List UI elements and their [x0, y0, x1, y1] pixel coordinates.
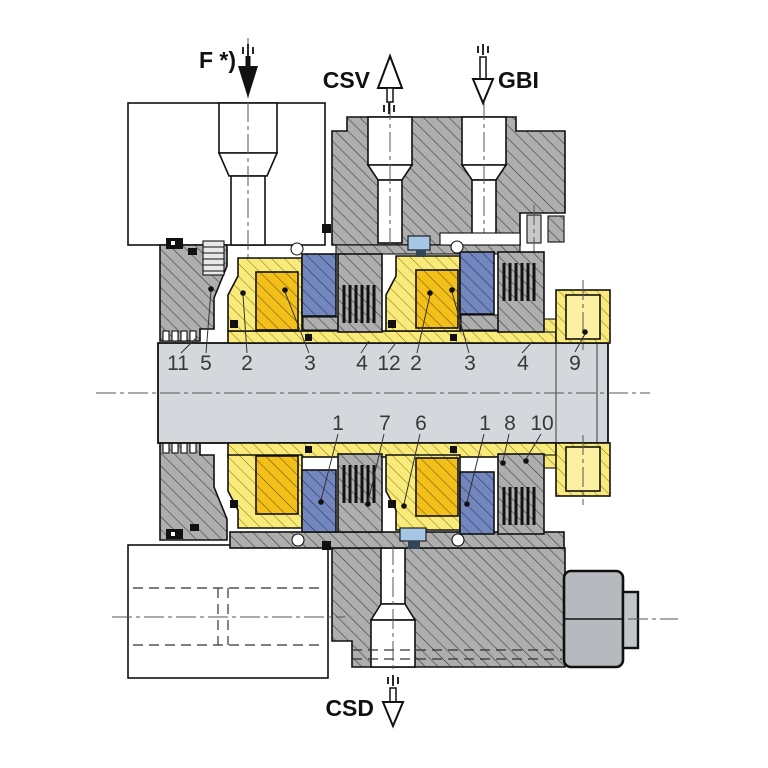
part-label: 2 [410, 352, 422, 375]
gland-flange-lug [548, 216, 564, 242]
force-label: F *) [199, 47, 236, 73]
part-label: 1 [479, 412, 491, 435]
flow-ticks [478, 44, 488, 55]
part-label: 3 [464, 352, 476, 375]
part-label: 7 [379, 412, 391, 435]
force-arrow-down [238, 66, 258, 98]
part-label: 1 [332, 412, 344, 435]
part-label: 5 [200, 352, 212, 375]
part-label: 4 [356, 352, 368, 375]
csv-label: CSV [323, 67, 371, 93]
part-label: 8 [504, 412, 516, 435]
seal-face-3 [256, 456, 298, 514]
stuffing-box-flange-upper [160, 238, 227, 341]
hex-bolt [564, 571, 678, 667]
threaded-plug [203, 241, 224, 275]
part-label: 10 [530, 412, 553, 435]
part-label: 6 [415, 412, 427, 435]
part-label: 3 [304, 352, 316, 375]
gbi-annotation: GBI [473, 44, 539, 103]
csd-arrow-down [383, 702, 403, 726]
pumping-ring-upper [408, 236, 430, 250]
seal-cross-section-diagram: 11 5 2 3 4 12 2 3 4 9 1 7 6 1 8 10 F *) … [0, 0, 768, 768]
part-label: 9 [569, 352, 581, 375]
mating-ring-1 [302, 254, 336, 316]
diagram-canvas: 11 5 2 3 4 12 2 3 4 9 1 7 6 1 8 10 F *) … [0, 0, 768, 768]
csd-label: CSD [325, 695, 374, 721]
seal-face-4 [416, 458, 458, 516]
gbi-arrow-down [473, 79, 493, 103]
part-label: 4 [517, 352, 529, 375]
gbi-label: GBI [498, 67, 539, 93]
upper-gland-housing [332, 100, 565, 254]
flow-ticks [388, 675, 398, 686]
lower-gland-housing [332, 548, 565, 667]
part-label: 2 [241, 352, 253, 375]
part-label: 11 [167, 352, 189, 375]
flow-ticks [384, 103, 394, 114]
part-label: 12 [377, 352, 400, 375]
flow-ticks [243, 44, 253, 56]
mating-ring-2 [460, 252, 494, 314]
pumping-ring-lower [400, 528, 426, 541]
seal-face-1 [256, 272, 298, 330]
csd-annotation: CSD [325, 675, 403, 726]
seal-face-2 [416, 270, 458, 328]
stuffing-box-flange-lower [160, 443, 227, 540]
csv-arrow-up [378, 56, 402, 88]
force-annotation: F *) [199, 44, 258, 98]
